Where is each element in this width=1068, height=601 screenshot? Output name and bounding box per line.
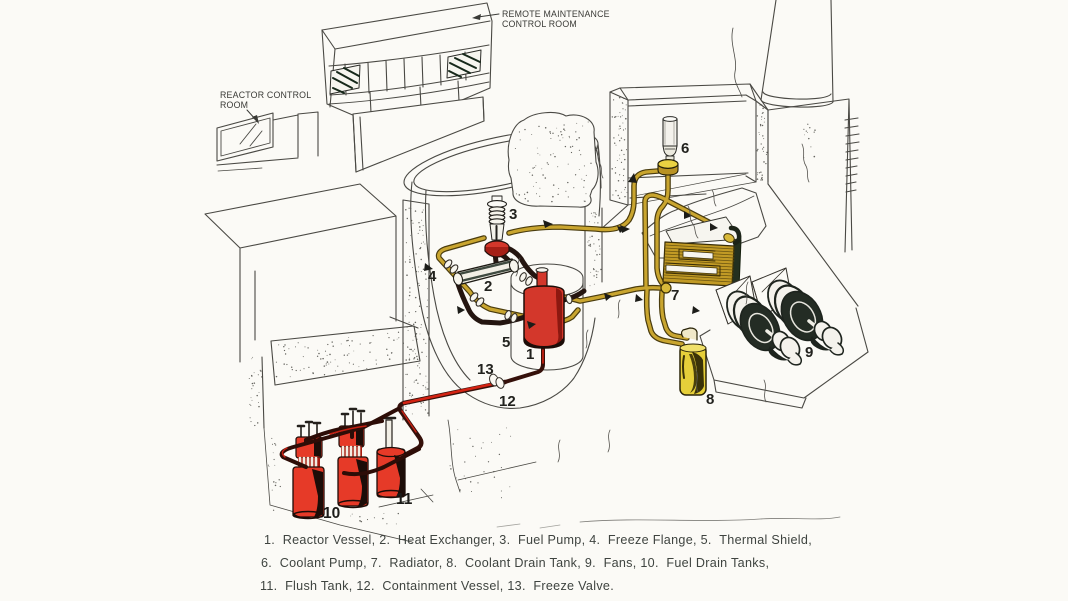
svg-text:11: 11 bbox=[396, 491, 413, 508]
svg-text:9: 9 bbox=[805, 344, 813, 361]
svg-text:11. Flush Tank, 12. Containm: 11. Flush Tank, 12. Containment Vessel, … bbox=[260, 579, 614, 593]
svg-text:REACTOR CONTROL: REACTOR CONTROL bbox=[220, 90, 311, 100]
svg-text:1. Reactor Vessel, 2. Heat E: 1. Reactor Vessel, 2. Heat Exchanger, 3.… bbox=[264, 533, 812, 547]
svg-text:4: 4 bbox=[428, 268, 437, 285]
svg-text:REMOTE MAINTENANCE: REMOTE MAINTENANCE bbox=[502, 9, 610, 19]
svg-text:6. Coolant Pump, 7. Radiator: 6. Coolant Pump, 7. Radiator, 8. Coolant… bbox=[261, 556, 769, 570]
svg-text:12: 12 bbox=[499, 393, 516, 410]
svg-text:10: 10 bbox=[323, 505, 340, 522]
svg-text:7: 7 bbox=[671, 287, 679, 304]
svg-text:8: 8 bbox=[706, 391, 714, 408]
svg-text:6: 6 bbox=[681, 140, 689, 157]
svg-text:CONTROL ROOM: CONTROL ROOM bbox=[502, 19, 577, 29]
svg-text:2: 2 bbox=[484, 278, 492, 295]
svg-text:5: 5 bbox=[502, 334, 510, 351]
svg-text:1: 1 bbox=[526, 346, 534, 363]
svg-text:13: 13 bbox=[477, 361, 494, 378]
svg-text:3: 3 bbox=[509, 206, 517, 223]
svg-text:ROOM: ROOM bbox=[220, 100, 248, 110]
